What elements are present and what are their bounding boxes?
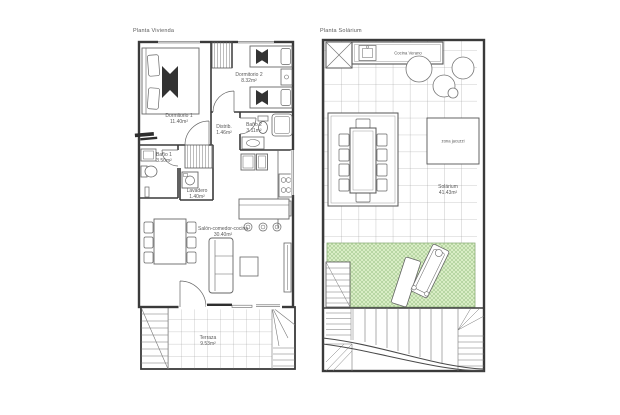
room-label-bano-1: Baño 1 3.50m² [156,152,172,164]
plan-title-vivienda: Planta Vivienda [133,28,174,34]
dining-table [144,219,196,264]
room-name: Cocina Verano [394,50,421,55]
room-area: 9.53m² [200,341,217,347]
room-area: 11.40m² [165,119,192,125]
room-label-cocina-verano: Cocina Verano [394,50,421,55]
skylight-shaft [326,42,352,68]
room-label-dormitorio-1: Dormitorio 1 11.40m² [165,113,192,125]
room-label-lavadero: Lavadero 1.40m² [187,188,208,200]
bed-dormitorio-1 [142,48,199,114]
kitchen-window [291,150,296,195]
plan-title-solarium: Planta Solárium [320,28,362,34]
floorplan-canvas: Planta Vivienda Planta Solárium Dormitor… [0,0,620,415]
room-label-dormitorio-2: Dormitorio 2 8.32m² [235,72,262,84]
room-area: 8.32m² [235,78,262,84]
interior-stair [185,145,213,168]
floorplan-drawing [0,0,620,415]
bottom-stairs [326,308,484,371]
solarium-plan [323,40,484,371]
sofa-tv [209,238,291,293]
room-label-bano-2: Baño 2 3.11m² [246,122,262,134]
kitchen [239,150,292,231]
room-area: 30.40m² [198,232,248,238]
bathroom-1-fixtures [141,149,157,197]
room-label-distribuidor: Distrib. 1.46m² [216,124,232,136]
washer [182,172,198,188]
outdoor-dining [328,113,398,206]
room-area: 3.11m² [246,128,262,134]
room-label-zona-jacuzzi: zona jacuzzi [441,138,464,143]
room-label-terraza: Terraza 9.53m² [200,335,217,347]
vivienda-plan [135,40,296,369]
room-area: 1.40m² [187,194,208,200]
solarium-stair-opening [326,262,350,307]
room-label-salon: Salón-comedor-cocina 30.40m² [198,226,248,238]
wardrobe [212,42,232,68]
room-label-solarium: Solárium 41.43m² [438,184,458,196]
room-name: zona jacuzzi [441,138,464,143]
room-area: 1.46m² [216,130,232,136]
room-area: 41.43m² [438,190,458,196]
curved-roof-edge [323,338,484,371]
room-area: 3.50m² [156,158,172,164]
